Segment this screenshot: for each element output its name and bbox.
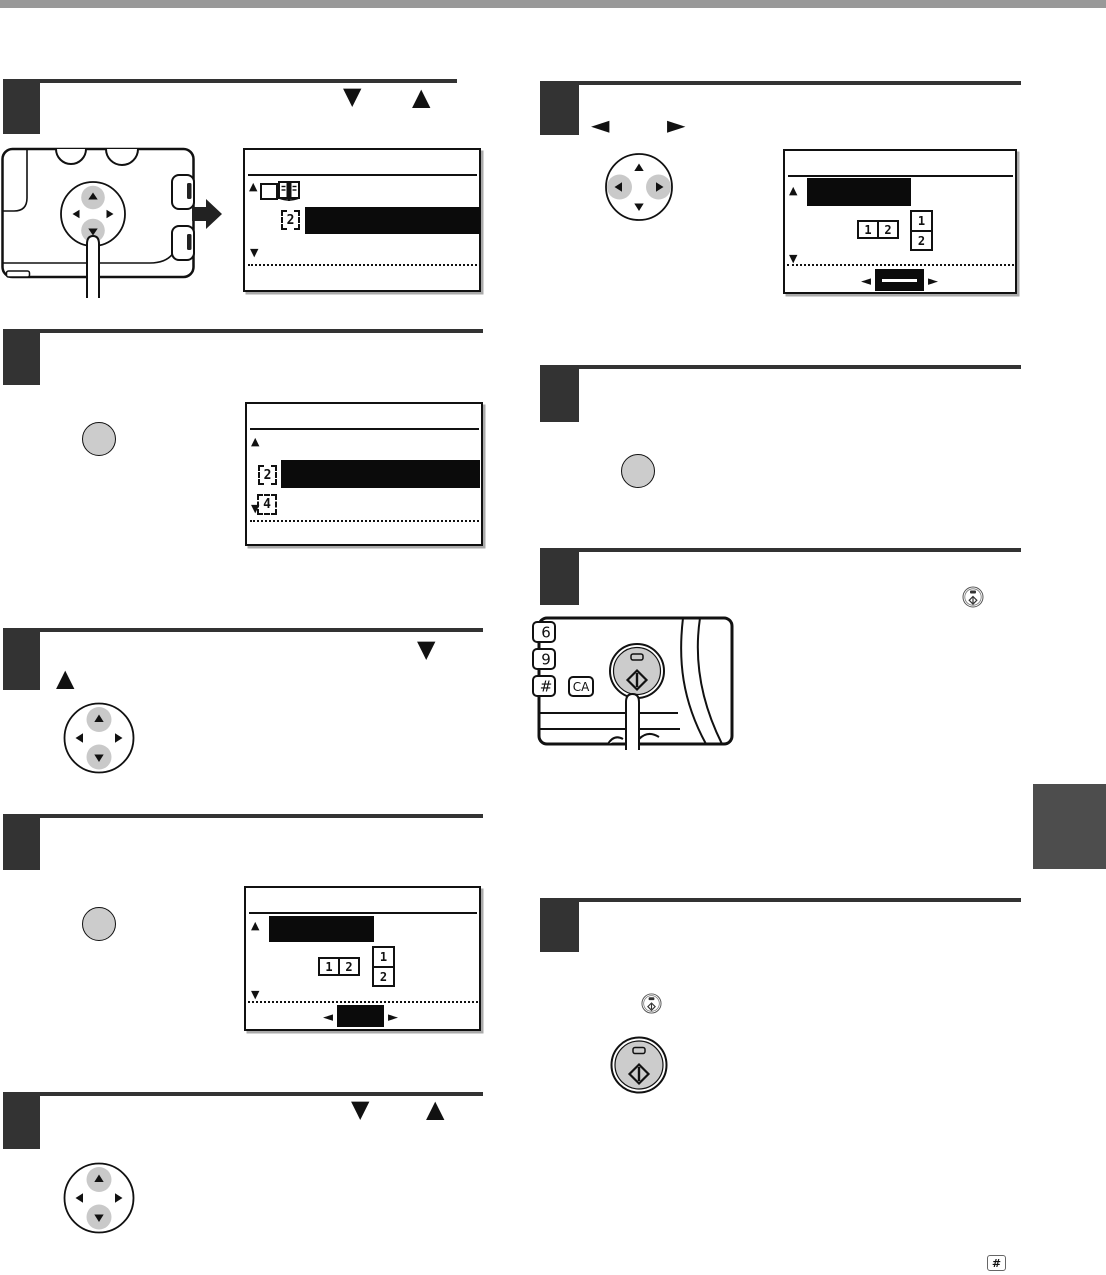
right-arrow-icon: ► bbox=[667, 113, 685, 137]
page-layout-pair-left-icon: 1 bbox=[318, 957, 340, 976]
down-arrow-icon: ▼ bbox=[417, 637, 435, 661]
stack-top-label: 1 bbox=[918, 214, 925, 228]
section-side-tab bbox=[1033, 784, 1106, 869]
lcd-nav-left-icon: ◄ bbox=[323, 1011, 333, 1024]
step-number-block bbox=[3, 628, 40, 690]
pair-right-label: 2 bbox=[884, 223, 891, 237]
step-rule bbox=[40, 1092, 483, 1096]
finger-illustration bbox=[87, 236, 99, 298]
dpad-up-down-highlight bbox=[60, 699, 140, 779]
up-arrow-icon: ▲ bbox=[56, 666, 74, 690]
pair-left-label: 1 bbox=[325, 960, 332, 974]
lcd-screen: ▲ 1 2 1 2 ▼ ◄ ► bbox=[783, 149, 1017, 294]
two-in-one-icon: 2 bbox=[258, 465, 277, 485]
page-layout-pair-left-icon: 1 bbox=[857, 220, 879, 239]
lcd-option-box-line bbox=[882, 279, 917, 282]
start-key-inline-icon bbox=[641, 993, 662, 1014]
clear-all-key-label: CA bbox=[573, 680, 590, 694]
lcd-scroll-up-icon: ▲ bbox=[789, 185, 797, 196]
left-arrow-icon: ◄ bbox=[591, 113, 609, 137]
stack-top-cell: 1 bbox=[912, 212, 931, 232]
step-number-block bbox=[3, 329, 40, 385]
two-in-one-icon: 2 bbox=[281, 210, 300, 230]
lcd-selected-row-highlight bbox=[269, 916, 374, 942]
lcd-selected-row-highlight bbox=[305, 207, 480, 234]
pair-left-label: 1 bbox=[864, 223, 871, 237]
stack-top-label: 1 bbox=[380, 950, 387, 964]
step-rule bbox=[579, 898, 1021, 902]
page-layout-pair-right-icon: 2 bbox=[338, 957, 360, 976]
step-rule bbox=[579, 548, 1021, 552]
step-number-block bbox=[540, 898, 579, 952]
up-arrow-icon: ▲ bbox=[426, 1097, 444, 1121]
keypad-start-illustration: 6 9 # CA bbox=[530, 610, 740, 750]
down-arrow-icon: ▼ bbox=[351, 1097, 369, 1121]
two-in-one-label: 2 bbox=[264, 468, 272, 483]
four-in-one-icon: 4 bbox=[257, 494, 277, 515]
lcd-dotted-divider bbox=[250, 520, 479, 522]
stack-bottom-label: 2 bbox=[380, 970, 387, 984]
lcd-title-rule bbox=[249, 912, 477, 914]
key-6-label: 6 bbox=[541, 624, 551, 642]
four-in-one-label: 4 bbox=[263, 497, 271, 512]
start-key-inline-icon bbox=[962, 586, 984, 608]
page-layout-pair-right-icon: 2 bbox=[877, 220, 899, 239]
up-arrow-icon: ▲ bbox=[412, 85, 430, 109]
lcd-scroll-down-icon: ▼ bbox=[251, 989, 259, 1000]
step-number-block bbox=[3, 814, 40, 870]
hash-key-footnote-icon: # bbox=[987, 1255, 1006, 1271]
ok-button-illustration bbox=[82, 907, 116, 941]
lcd-selected-row-highlight bbox=[807, 178, 911, 206]
stack-bottom-cell: 2 bbox=[912, 232, 931, 250]
lcd-scroll-down-icon: ▼ bbox=[789, 253, 797, 264]
step-number-block bbox=[3, 79, 40, 134]
start-indicator-lamp bbox=[633, 1048, 645, 1054]
pair-right-label: 2 bbox=[345, 960, 352, 974]
step-rule bbox=[40, 814, 483, 818]
lcd-dotted-divider bbox=[248, 1001, 478, 1003]
stack-bottom-label: 2 bbox=[918, 234, 925, 248]
stack-bottom-cell: 2 bbox=[374, 968, 393, 986]
lcd-selected-row-highlight bbox=[281, 460, 480, 488]
start-button bbox=[610, 644, 664, 698]
ok-button-illustration bbox=[82, 422, 116, 456]
down-arrow-icon: ▼ bbox=[343, 84, 361, 108]
step-rule bbox=[40, 628, 483, 632]
ok-button-illustration bbox=[621, 454, 655, 488]
panel-notch bbox=[7, 271, 30, 277]
lcd-option-box bbox=[337, 1005, 384, 1027]
step-rule bbox=[579, 365, 1021, 369]
lcd-scroll-up-icon: ▲ bbox=[251, 920, 259, 931]
hash-key-footnote-label: # bbox=[992, 1257, 1001, 1270]
dpad-up-down-highlight bbox=[60, 1159, 140, 1239]
page-layout-stack-icon: 1 2 bbox=[372, 946, 395, 987]
hash-key-label: # bbox=[540, 678, 553, 696]
lcd-nav-right-icon: ► bbox=[388, 1011, 398, 1024]
lcd-screen: ▲ 2 4 ▼ bbox=[245, 402, 483, 546]
dpad-left-right-highlight bbox=[600, 148, 680, 228]
step-rule bbox=[40, 79, 457, 83]
start-indicator-lamp bbox=[631, 654, 643, 660]
stack-top-cell: 1 bbox=[374, 948, 393, 968]
key-9-label: 9 bbox=[541, 651, 551, 669]
step-number-block bbox=[540, 81, 579, 135]
step-rule bbox=[579, 81, 1021, 85]
page-layout-stack-icon: 1 2 bbox=[910, 210, 933, 251]
lcd-dotted-divider bbox=[248, 264, 477, 266]
lcd-scroll-down-icon: ▼ bbox=[251, 503, 259, 514]
step-rule bbox=[40, 329, 483, 333]
lcd-title-rule bbox=[788, 175, 1013, 177]
lcd-scroll-up-icon: ▲ bbox=[249, 181, 257, 192]
lcd-nav-right-icon: ► bbox=[928, 275, 938, 288]
manual-page: ▼ ▲ ◄ ► ▼ ▲ ▼ ▲ bbox=[0, 0, 1106, 1275]
step-number-block bbox=[3, 1092, 40, 1149]
step-number-block bbox=[540, 548, 579, 605]
two-in-one-label: 2 bbox=[287, 213, 295, 228]
lcd-screen: ▲ 2 ▼ bbox=[243, 148, 481, 292]
lcd-scroll-down-icon: ▼ bbox=[250, 247, 258, 258]
checkbox-icon bbox=[260, 183, 278, 200]
side-key-glyph bbox=[187, 183, 192, 199]
side-key-glyph bbox=[187, 234, 192, 250]
book-icon bbox=[277, 180, 301, 202]
lcd-title-rule bbox=[248, 174, 477, 176]
pointer-arrow-icon bbox=[192, 197, 224, 231]
start-button bbox=[605, 1031, 673, 1099]
finger-illustration bbox=[626, 694, 639, 750]
lcd-nav-left-icon: ◄ bbox=[861, 275, 871, 288]
step-number-block bbox=[540, 365, 579, 422]
lcd-option-box bbox=[875, 269, 924, 291]
lcd-scroll-up-icon: ▲ bbox=[251, 436, 259, 447]
lcd-title-rule bbox=[250, 428, 479, 430]
lcd-screen: ▲ 1 2 1 2 ▼ ◄ ► bbox=[244, 886, 481, 1031]
lcd-dotted-divider bbox=[787, 264, 1014, 266]
page-top-band bbox=[0, 0, 1106, 8]
